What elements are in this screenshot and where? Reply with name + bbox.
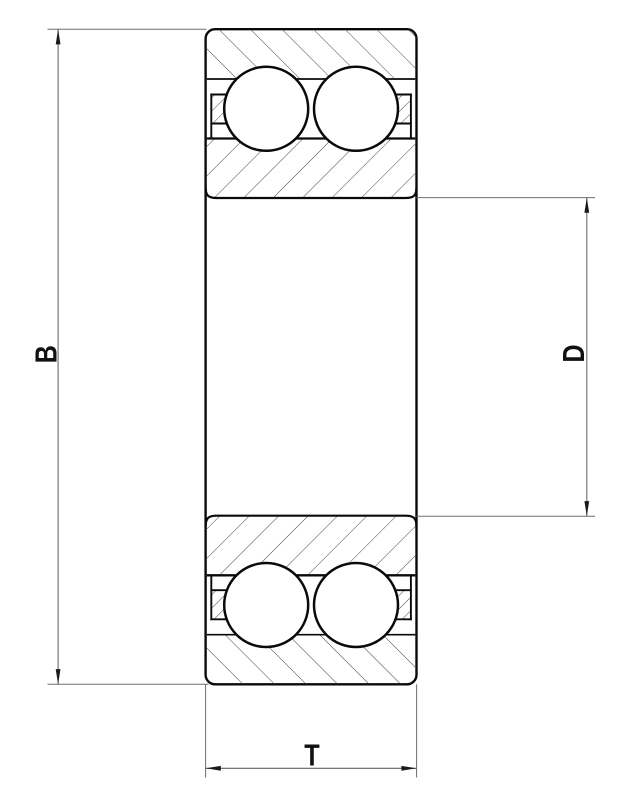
svg-text:T: T	[304, 737, 319, 772]
svg-text:D: D	[555, 344, 590, 362]
svg-text:B: B	[28, 345, 63, 363]
